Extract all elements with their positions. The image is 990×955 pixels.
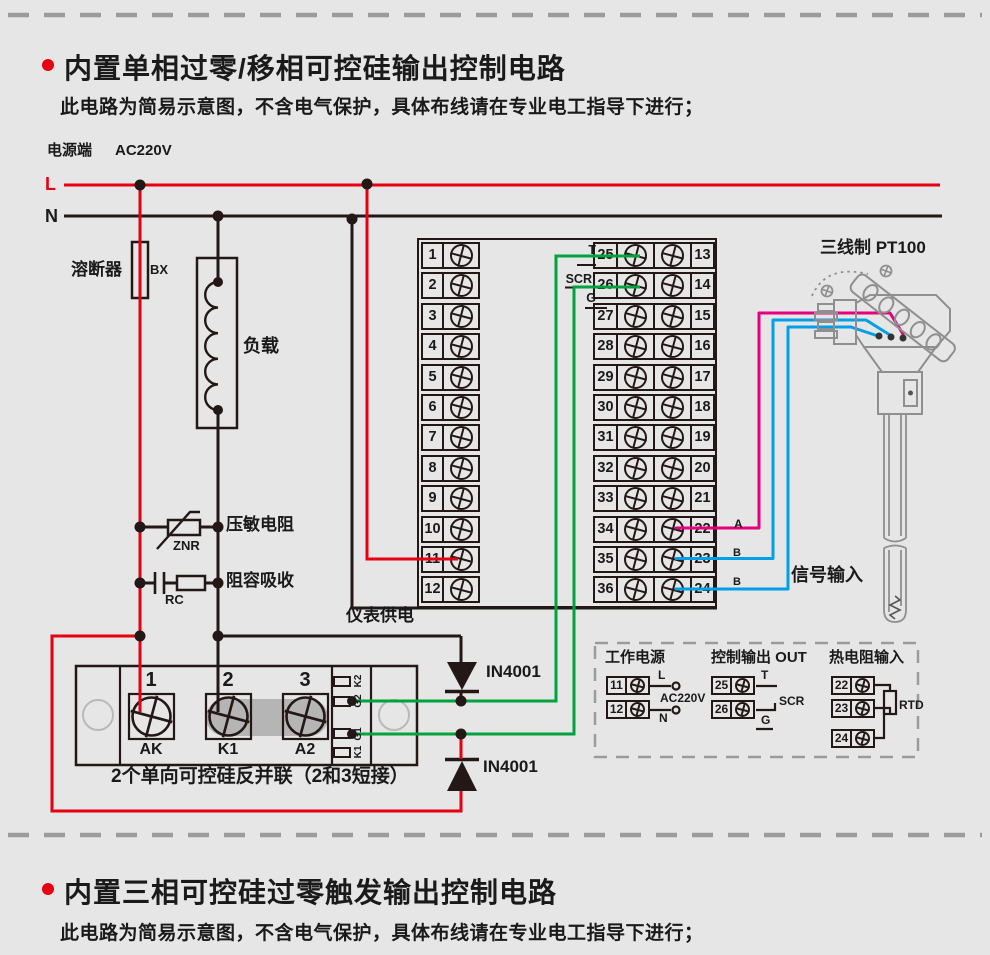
sensor-cap	[848, 272, 957, 364]
sensor-title: 三线制 PT100	[820, 238, 926, 258]
varistor-code: ZNR	[173, 539, 200, 554]
gate-slots	[334, 677, 350, 757]
section2-subtitle: 此电路为简易示意图，不含电气保护，具体布线请在专业电工指导下进行；	[60, 918, 704, 945]
diode-bottom-label: IN4001	[483, 757, 538, 777]
infobox-rtd-label: RTD	[899, 699, 924, 713]
rtd-element-coil	[890, 596, 900, 619]
red-wires	[52, 184, 940, 811]
module-hole-right	[379, 700, 409, 730]
module-number-3: 3	[290, 669, 320, 692]
conduit-fitting	[815, 300, 856, 344]
power-voltage-label: AC220V	[115, 142, 172, 159]
fuse-code: BX	[150, 263, 168, 278]
load-label: 负载	[243, 336, 279, 357]
module-name-ak: AK	[131, 741, 171, 759]
wire-b1-label: B	[733, 547, 741, 560]
cap-screw-1	[819, 283, 834, 298]
module-hole-left	[83, 700, 113, 730]
fuse-label: 溶断器	[71, 260, 122, 280]
sensor-clamp	[878, 372, 922, 414]
module-caption: 2个单向可控硅反并联（2和3短接）	[111, 766, 409, 788]
wiring-diagram-page: 1 2 3 4 5 6 7 8 9	[0, 0, 990, 955]
meter-live-branch	[367, 184, 458, 559]
black-wires	[64, 216, 942, 712]
snubber-resistor	[177, 576, 205, 590]
section1-bullet	[42, 59, 54, 71]
infobox-n-label: N	[659, 712, 668, 726]
neutral-line-label: N	[45, 206, 58, 227]
cap-screw-2	[878, 263, 893, 278]
signal-input-label: 信号输入	[791, 565, 863, 586]
section2-title: 内置三相可控硅过零触发输出控制电路	[64, 871, 557, 911]
slot-label-g2: G2	[354, 693, 364, 709]
terminal-scr-label: SCR	[544, 272, 592, 286]
power-source-label: 电源端	[47, 142, 92, 159]
infobox-l-label: L	[658, 669, 665, 683]
diode-bottom-triangle	[447, 761, 477, 791]
slot-label-k2: K2	[354, 673, 364, 689]
infobox-rtd-title: 热电阻输入	[829, 649, 904, 666]
module-screws	[125, 690, 332, 743]
clamp-bolt	[908, 391, 913, 396]
slot-label-k1: K1	[354, 744, 364, 760]
infobox-output-title: 控制输出 OUT	[711, 649, 807, 666]
infobox-rtd-lead-24	[875, 709, 884, 738]
infobox-l-terminal	[673, 683, 680, 690]
diode-top-label: IN4001	[486, 662, 541, 682]
junction-dots	[135, 179, 467, 740]
module-number-1: 1	[136, 669, 166, 692]
sensor-wire-b2	[676, 327, 878, 589]
infobox-power-title: 工作电源	[605, 649, 665, 666]
meter-neutral-branch	[352, 219, 717, 608]
module-name-a2: A2	[285, 741, 325, 759]
load-coil	[205, 282, 218, 410]
section1-subtitle: 此电路为简易示意图，不含电气保护，具体布线请在专业电工指导下进行；	[60, 92, 704, 119]
infobox-n-terminal	[673, 707, 680, 714]
section1-title: 内置单相过零/移相可控硅输出控制电路	[64, 47, 566, 87]
module-name-k1: K1	[208, 741, 248, 759]
sensor-neck	[864, 347, 936, 372]
varistor-label: 压敏电阻	[226, 515, 294, 535]
live-line-label: L	[45, 174, 56, 195]
infobox-g-label: G	[761, 714, 770, 728]
wire-a-label: A	[734, 518, 743, 532]
infobox-t-label: T	[761, 669, 768, 683]
snubber-label: 阻容吸收	[226, 571, 294, 591]
section2-bullet	[42, 883, 54, 895]
infobox-scr-lead	[756, 703, 775, 710]
sensor-probe	[884, 414, 906, 622]
diodes	[445, 636, 479, 791]
slot-label-g1: G1	[354, 726, 364, 742]
snubber-code: RC	[165, 593, 184, 608]
wire-b2-label: B	[733, 576, 741, 589]
capacitor-plates	[155, 572, 164, 594]
terminal-g-label: G	[554, 291, 596, 305]
infobox-voltage-label: AC220V	[660, 692, 705, 706]
sensor-wire-b1	[676, 320, 890, 559]
gate-wire-t	[348, 256, 640, 701]
module-number-2: 2	[213, 669, 243, 692]
diode-top-triangle	[447, 662, 477, 690]
infobox-scr-label: SCR	[779, 695, 804, 709]
meter-supply-label: 仪表供电	[346, 606, 414, 626]
terminal-t-label: T	[554, 243, 596, 257]
